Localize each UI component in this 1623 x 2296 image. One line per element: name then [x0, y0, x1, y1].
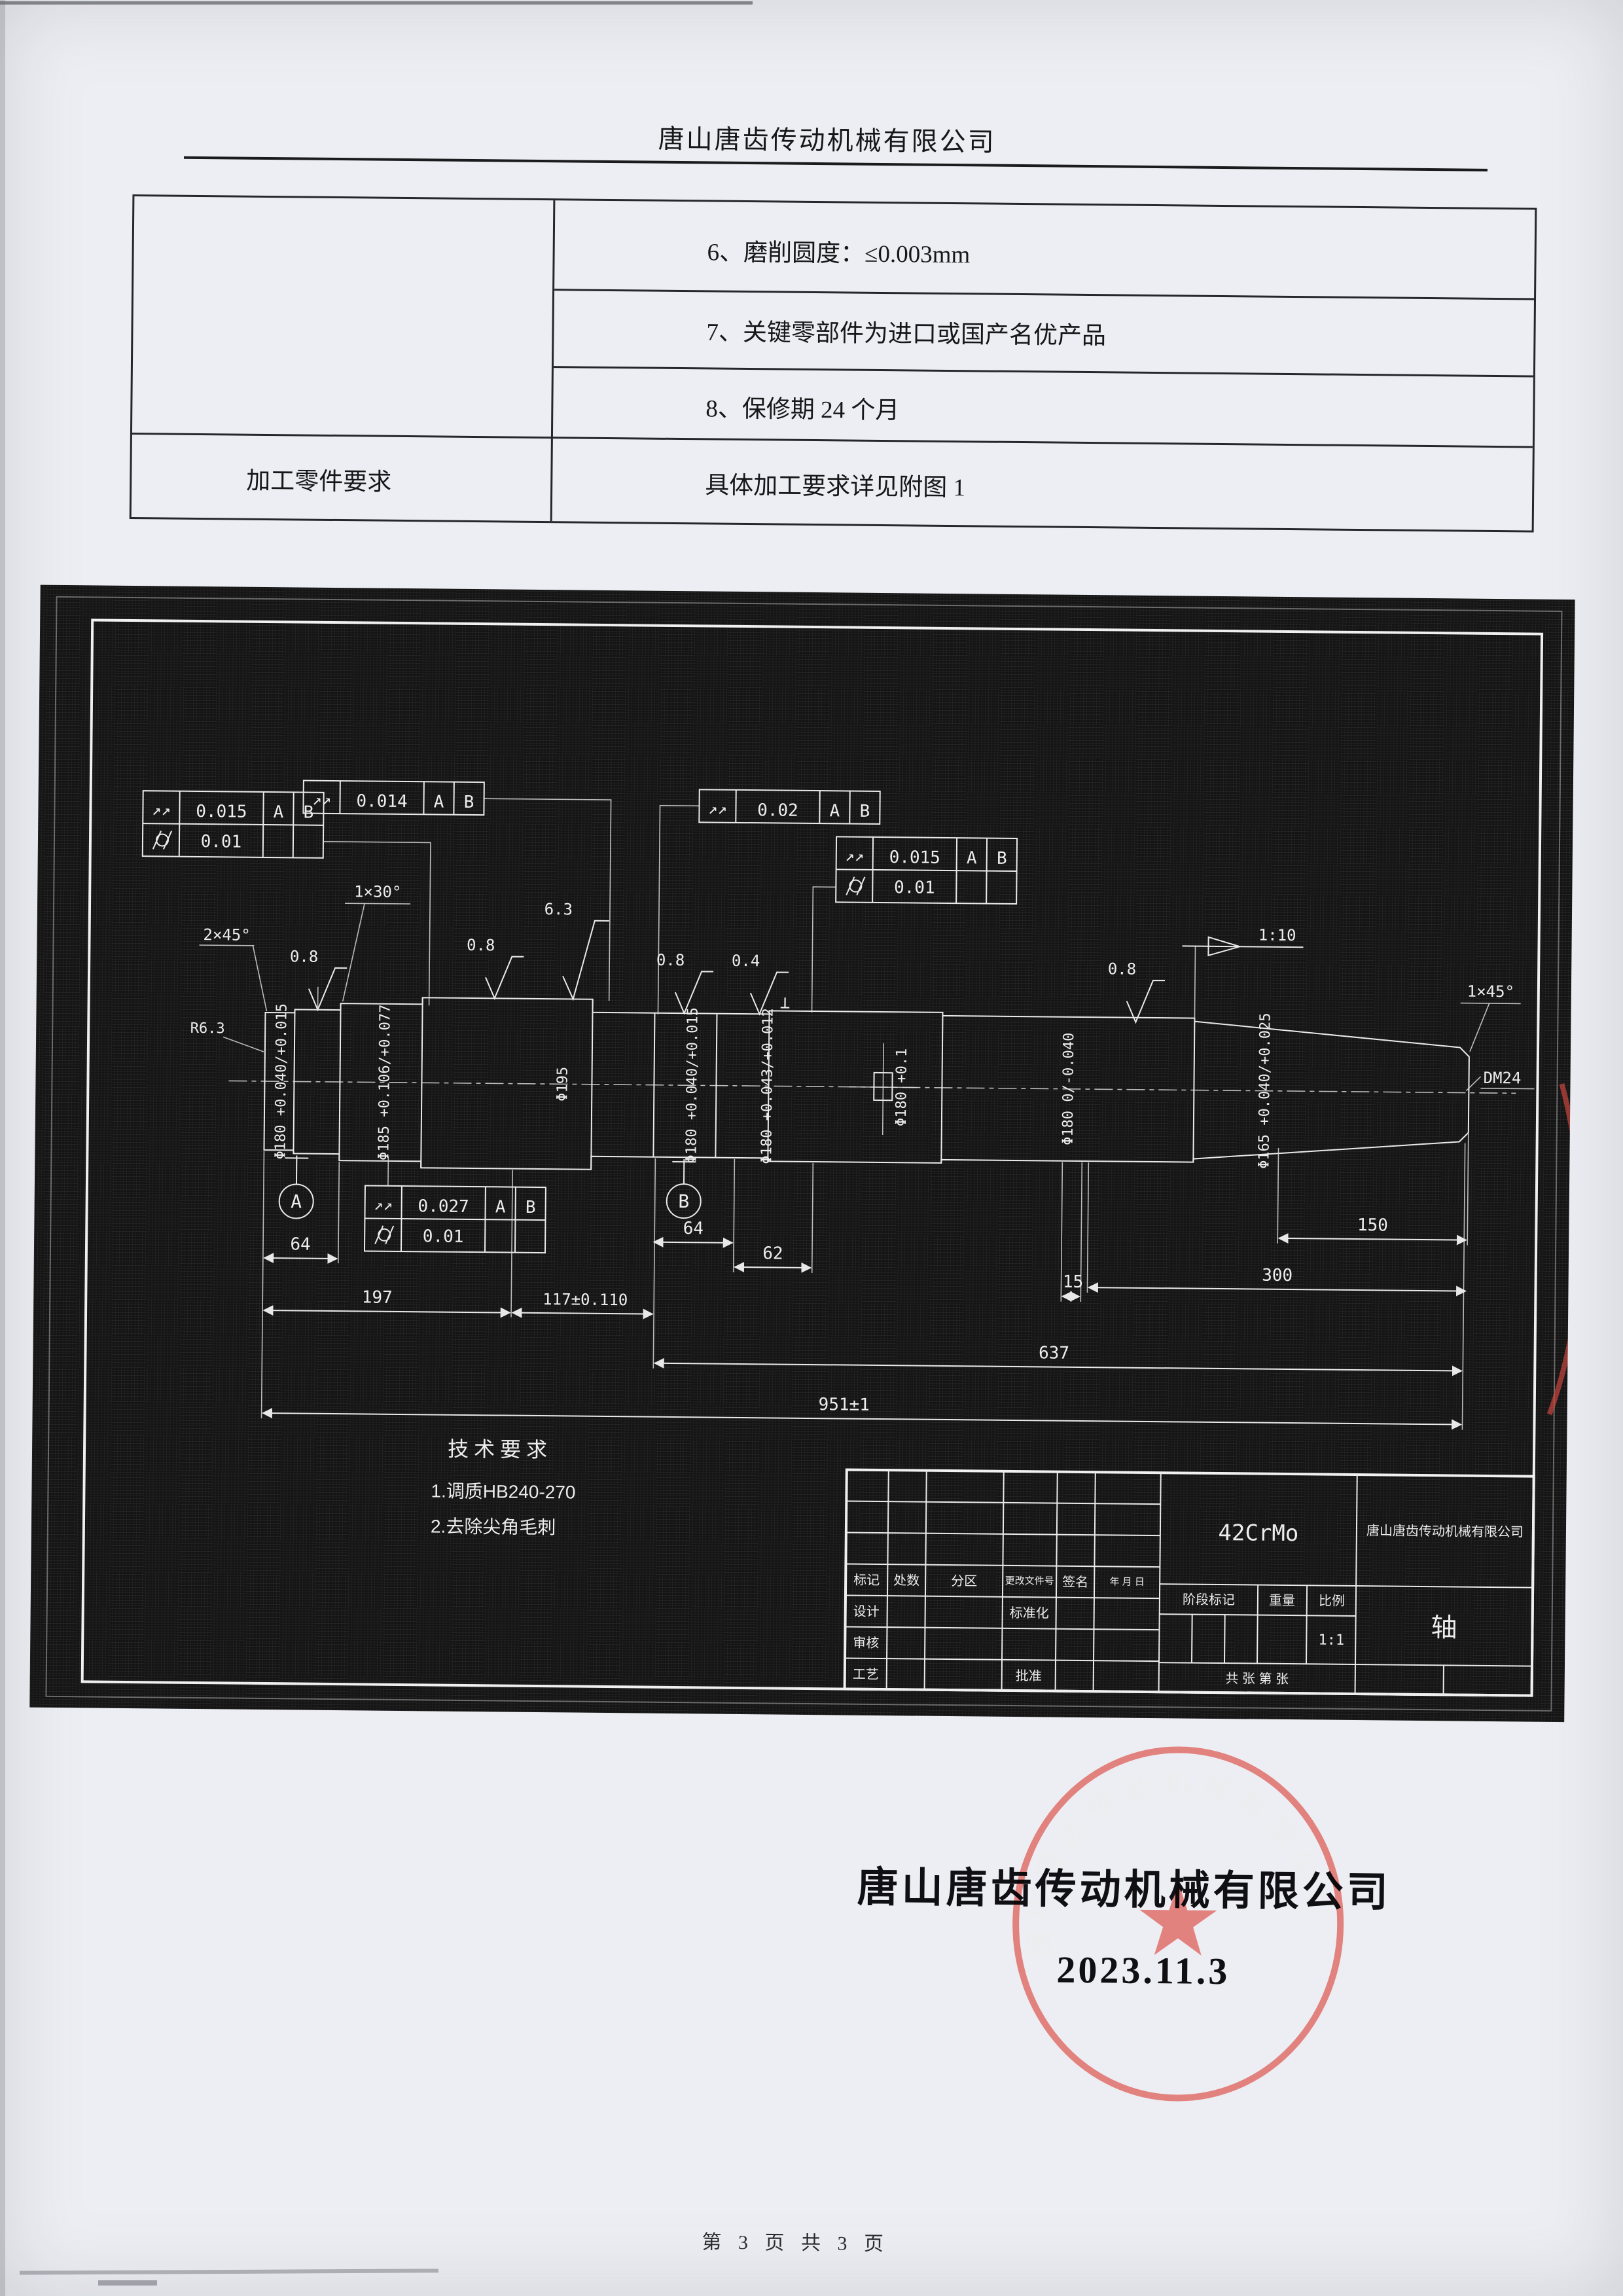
- fcf-leader: [322, 842, 431, 1006]
- header-company-title: 唐山唐齿传动机械有限公司: [658, 118, 996, 159]
- fcf-value: 0.015: [196, 802, 247, 822]
- header-rule: [184, 156, 1488, 171]
- roughness-mark: 0.8: [656, 951, 713, 1014]
- total-runout-icon: ↗↗: [708, 799, 727, 817]
- roughness-mark: 0.8: [1107, 960, 1165, 1022]
- dim-label: 300: [1262, 1266, 1293, 1285]
- chamfer-label: 1×45°: [1467, 982, 1515, 1001]
- scan-edge-artifact: [0, 0, 5, 2296]
- tb-label: 工艺: [853, 1667, 879, 1682]
- tb-label: 重量: [1269, 1593, 1295, 1608]
- fcf-e: ↗↗ 0.027 A B 0.01: [365, 1156, 546, 1253]
- svg-text:0.4: 0.4: [732, 952, 760, 970]
- fcf-datum: A: [967, 848, 977, 868]
- tb-scale-value: 1:1: [1318, 1632, 1344, 1648]
- fcf-value: 0.027: [418, 1196, 469, 1217]
- spec-row-6: 6、磨削圆度：≤0.003mm: [707, 232, 970, 270]
- fcf-value: 0.015: [889, 848, 941, 868]
- fcf-datum: A: [434, 792, 444, 812]
- total-runout-icon: ↗↗: [312, 791, 331, 809]
- svg-text:0.8: 0.8: [467, 936, 495, 954]
- chamfer-label: 1×30°: [354, 882, 402, 901]
- perpendicularity-icon: ⊥: [780, 994, 791, 1013]
- datum-letter: B: [678, 1191, 689, 1212]
- datum-letter: A: [291, 1191, 302, 1212]
- fcf-b: ↗↗ 0.014 A B: [302, 781, 611, 1001]
- dia-label: Φ195: [554, 1067, 571, 1102]
- fillet-label: R6.3: [190, 1020, 225, 1037]
- roughness-mark: 0.8: [466, 936, 524, 999]
- tb-label: 阶段标记: [1183, 1592, 1235, 1607]
- total-runout-icon: ↗↗: [845, 846, 864, 865]
- tb-label: 审核: [853, 1636, 879, 1651]
- dim-label: 64: [683, 1219, 704, 1238]
- tb-label: 标准化: [1010, 1605, 1049, 1621]
- stamp-arc-artifact: [1550, 1084, 1575, 1414]
- dia-label: Φ180 0/-0.040: [1060, 1033, 1078, 1145]
- fillet-callout: R6.3: [190, 1020, 264, 1052]
- fcf-datum: A: [829, 801, 840, 821]
- company-seal-stamp: 唐山唐齿传动机械有限公司: [950, 1691, 1406, 2161]
- page-number-footer: 第 3 页 共 3 页: [702, 2225, 889, 2256]
- roughness-mark: 0.8: [289, 947, 347, 1010]
- spec-row-9: 具体加工要求详见附图 1: [705, 465, 965, 503]
- fcf-value: 0.014: [356, 791, 408, 812]
- tb-part-name: 轴: [1431, 1613, 1457, 1642]
- tb-sheet: 共 张 第 张: [1225, 1671, 1289, 1687]
- tech-req-title: 技术要求: [448, 1437, 552, 1462]
- dim-label: 197: [362, 1287, 393, 1307]
- taper-label: 1:10: [1258, 926, 1296, 945]
- keyway-centerline: [883, 1043, 883, 1135]
- total-runout-icon: ↗↗: [152, 800, 171, 819]
- scanned-document-page: 唐山唐齿传动机械有限公司 6、磨削圆度：≤0.003mm 7、关键零部件为进口或…: [0, 0, 1623, 2296]
- fcf-datum: A: [273, 802, 283, 822]
- dia-label: Φ180 +0.040/+0.015: [683, 1007, 701, 1164]
- tech-req-item: 2.去除尖角毛刺: [431, 1516, 556, 1537]
- fcf-datum: A: [495, 1197, 506, 1217]
- center-hole-label: DM24: [1483, 1069, 1521, 1088]
- dim-label: 64: [290, 1234, 311, 1254]
- dim-label: 637: [1039, 1343, 1069, 1363]
- fcf-datum: B: [526, 1198, 536, 1217]
- svg-text:0.8: 0.8: [656, 951, 685, 969]
- row-divider: [554, 366, 1533, 377]
- cylindricity-icon: [153, 831, 171, 849]
- fcf-value: 0.01: [423, 1227, 464, 1247]
- tech-req-item: 1.调质HB240-270: [431, 1480, 575, 1502]
- datum-a-symbol: A: [279, 1155, 313, 1218]
- roughness-mark: 6.3: [543, 900, 609, 999]
- fcf-value: 0.02: [757, 800, 798, 821]
- dia-label: Φ180 +0.040/+0.015: [272, 1003, 290, 1160]
- title-block: 标记 处数 分区 更改文件号 签名 年 月 日 设计 标准化 审核 工艺 批准 …: [845, 1470, 1534, 1696]
- tb-label: 分区: [951, 1573, 977, 1588]
- fcf-d: ↗↗ 0.015 A B 0.01: [812, 836, 1018, 1014]
- scan-content: 唐山唐齿传动机械有限公司 6、磨削圆度：≤0.003mm 7、关键零部件为进口或…: [0, 0, 1623, 2296]
- spec-table-column-divider: [550, 200, 556, 521]
- spec-left-label: 加工零件要求: [246, 461, 392, 497]
- fcf-value: 0.01: [894, 878, 935, 898]
- taper-callout: 1:10: [1181, 925, 1303, 1022]
- fcf-datum: B: [464, 793, 474, 812]
- roughness-mark: 0.4 ⊥: [731, 952, 791, 1014]
- row-divider: [132, 433, 1533, 448]
- datum-b-symbol: B: [666, 1159, 701, 1218]
- dim-label: 150: [1357, 1215, 1388, 1235]
- dia-label: Φ180 +0.043/+0.012: [758, 1008, 776, 1164]
- dia-label: Φ165 +0.040/+0.025: [1256, 1013, 1274, 1169]
- fcf-leader: [658, 806, 699, 1015]
- scan-edge-artifact: [0, 1, 753, 5]
- scan-edge-artifact: [98, 2280, 157, 2286]
- dim-label: 62: [762, 1244, 783, 1263]
- fcf-datum: B: [859, 802, 870, 821]
- tb-label: 处数: [893, 1573, 919, 1588]
- chamfer-label: 2×45°: [203, 925, 251, 944]
- chamfer-callouts: 2×45° 1×30° 1×45° 1:10 DM24: [198, 881, 1536, 1092]
- dia-label: Φ180 +0.1: [893, 1049, 910, 1126]
- tb-label: 批准: [1016, 1668, 1042, 1683]
- dim-label: 117±0.110: [543, 1290, 628, 1309]
- dia-label: Φ185 +0.106/+0.077: [376, 1004, 393, 1160]
- spec-row-8: 8、保修期 24 个月: [705, 388, 900, 425]
- tb-label: 签名: [1062, 1575, 1088, 1590]
- row-divider: [554, 289, 1534, 300]
- fcf-value: 0.01: [201, 832, 242, 852]
- tb-label: 年 月 日: [1109, 1576, 1145, 1588]
- tb-label: 比例: [1319, 1593, 1345, 1608]
- total-runout-icon: ↗↗: [374, 1196, 393, 1214]
- tb-label: 更改文件号: [1005, 1575, 1054, 1587]
- tb-label: 设计: [853, 1604, 880, 1619]
- technical-requirements: 技术要求 1.调质HB240-270 2.去除尖角毛刺: [431, 1437, 576, 1537]
- shaft-drawing-svg: Φ180 +0.040/+0.015 Φ185 +0.106/+0.077 Φ1…: [29, 585, 1575, 1722]
- svg-text:6.3: 6.3: [544, 900, 573, 918]
- fcf-leader: [812, 887, 836, 1013]
- fcf-datum: B: [997, 849, 1007, 869]
- spec-row-7: 7、关键零部件为进口或国产名优产品: [706, 312, 1106, 351]
- dim-label: 15: [1063, 1272, 1084, 1292]
- spec-table: 6、磨削圆度：≤0.003mm 7、关键零部件为进口或国产名优产品 8、保修期 …: [130, 194, 1537, 533]
- cylindricity-icon: [375, 1226, 393, 1244]
- shaft-outline: [264, 996, 1469, 1178]
- tb-material: 42CrMo: [1218, 1520, 1298, 1547]
- attached-drawing-figure1: Φ180 +0.040/+0.015 Φ185 +0.106/+0.077 Φ1…: [29, 585, 1575, 1722]
- stamp-star-icon: [1139, 1882, 1217, 1956]
- cylindricity-icon: [846, 877, 865, 895]
- tb-label: 标记: [853, 1573, 880, 1588]
- tb-company: 唐山唐齿传动机械有限公司: [1366, 1523, 1524, 1539]
- svg-text:0.8: 0.8: [290, 947, 319, 965]
- dim-label: 951±1: [818, 1395, 870, 1415]
- center-hole-callout: DM24: [1466, 1069, 1534, 1092]
- svg-text:0.8: 0.8: [1108, 960, 1137, 978]
